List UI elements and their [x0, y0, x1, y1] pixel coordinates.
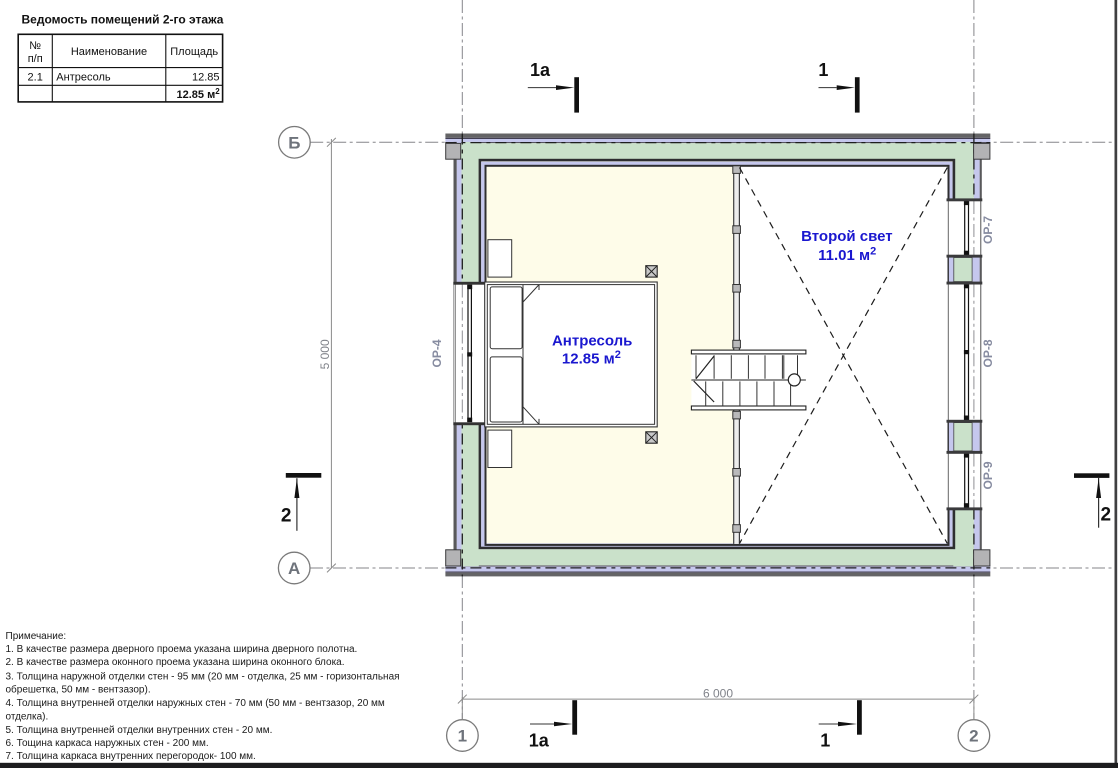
svg-text:5. Толщина внутренней отделки: 5. Толщина внутренней отделки внутренних… — [6, 725, 273, 736]
svg-text:12.85 м2: 12.85 м2 — [177, 87, 221, 101]
svg-text:2.1: 2.1 — [28, 71, 43, 83]
svg-text:Наименование: Наименование — [71, 46, 147, 58]
svg-text:1. В качестве размера дверного: 1. В качестве размера дверного проема ук… — [6, 644, 358, 655]
svg-text:11.01 м2: 11.01 м2 — [818, 246, 876, 265]
svg-text:Примечание:: Примечание: — [6, 631, 67, 642]
svg-text:Площадь: Площадь — [170, 46, 218, 58]
svg-text:отделка).: отделка). — [6, 712, 49, 723]
svg-text:12.85 м2: 12.85 м2 — [562, 349, 621, 368]
svg-text:ОР-4: ОР-4 — [430, 339, 444, 367]
svg-text:5 000: 5 000 — [318, 339, 332, 369]
svg-text:6. Тощина каркаса наружных сте: 6. Тощина каркаса наружных стен - 200 мм… — [6, 738, 209, 749]
svg-text:2: 2 — [281, 506, 292, 527]
svg-text:4. Толщина внутренней отделки: 4. Толщина внутренней отделки наружных с… — [6, 698, 385, 709]
svg-text:2. В качестве размера оконного: 2. В качестве размера оконного проема ук… — [6, 656, 345, 668]
svg-text:Ведомость помещений 2-го этажа: Ведомость помещений 2-го этажа — [22, 13, 224, 27]
svg-text:ОР-9: ОР-9 — [981, 461, 995, 489]
svg-text:ОР-7: ОР-7 — [981, 216, 995, 244]
svg-text:1: 1 — [818, 60, 828, 80]
svg-text:ОР-8: ОР-8 — [981, 339, 995, 367]
svg-text:2: 2 — [969, 727, 978, 746]
svg-text:№: № — [29, 40, 41, 52]
svg-text:обрешетка, 50 мм - вентзазор).: обрешетка, 50 мм - вентзазор). — [6, 684, 151, 696]
svg-text:Б: Б — [288, 133, 300, 152]
svg-text:Второй свет: Второй свет — [801, 228, 893, 245]
svg-text:Антресоль: Антресоль — [552, 332, 632, 349]
svg-text:п/п: п/п — [28, 53, 43, 65]
svg-text:1: 1 — [458, 727, 467, 746]
svg-text:А: А — [288, 559, 300, 578]
svg-text:1: 1 — [820, 730, 830, 750]
svg-text:1а: 1а — [530, 60, 551, 80]
svg-text:1а: 1а — [529, 730, 550, 750]
svg-text:3. Толщина наружной отделки ст: 3. Толщина наружной отделки стен - 95 мм… — [6, 672, 400, 683]
svg-text:12.85: 12.85 — [192, 71, 220, 83]
svg-text:Антресоль: Антресоль — [56, 71, 111, 83]
svg-text:7. Толщина каркаса внутренних: 7. Толщина каркаса внутренних перегородо… — [6, 751, 256, 762]
svg-text:6 000: 6 000 — [703, 686, 733, 700]
svg-text:2: 2 — [1101, 504, 1112, 525]
